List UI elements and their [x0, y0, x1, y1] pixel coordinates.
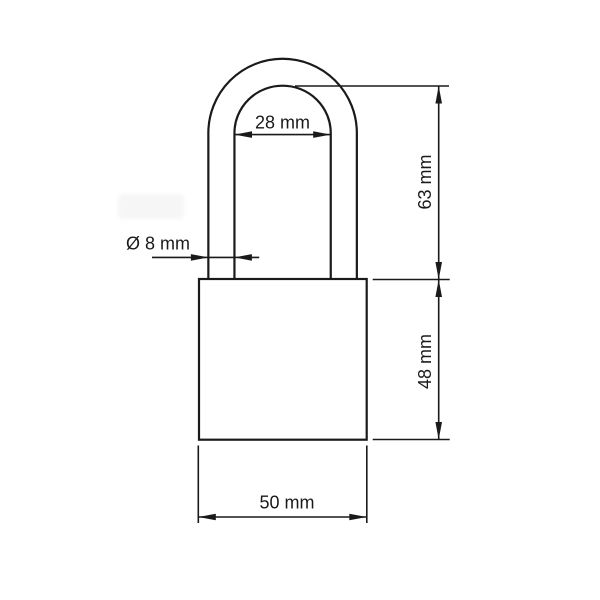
svg-text:Ø 8 mm: Ø 8 mm [126, 233, 190, 253]
svg-text:63 mm: 63 mm [415, 154, 435, 209]
svg-text:28 mm: 28 mm [255, 113, 310, 133]
svg-text:48 mm: 48 mm [415, 334, 435, 389]
svg-text:50 mm: 50 mm [259, 492, 314, 512]
